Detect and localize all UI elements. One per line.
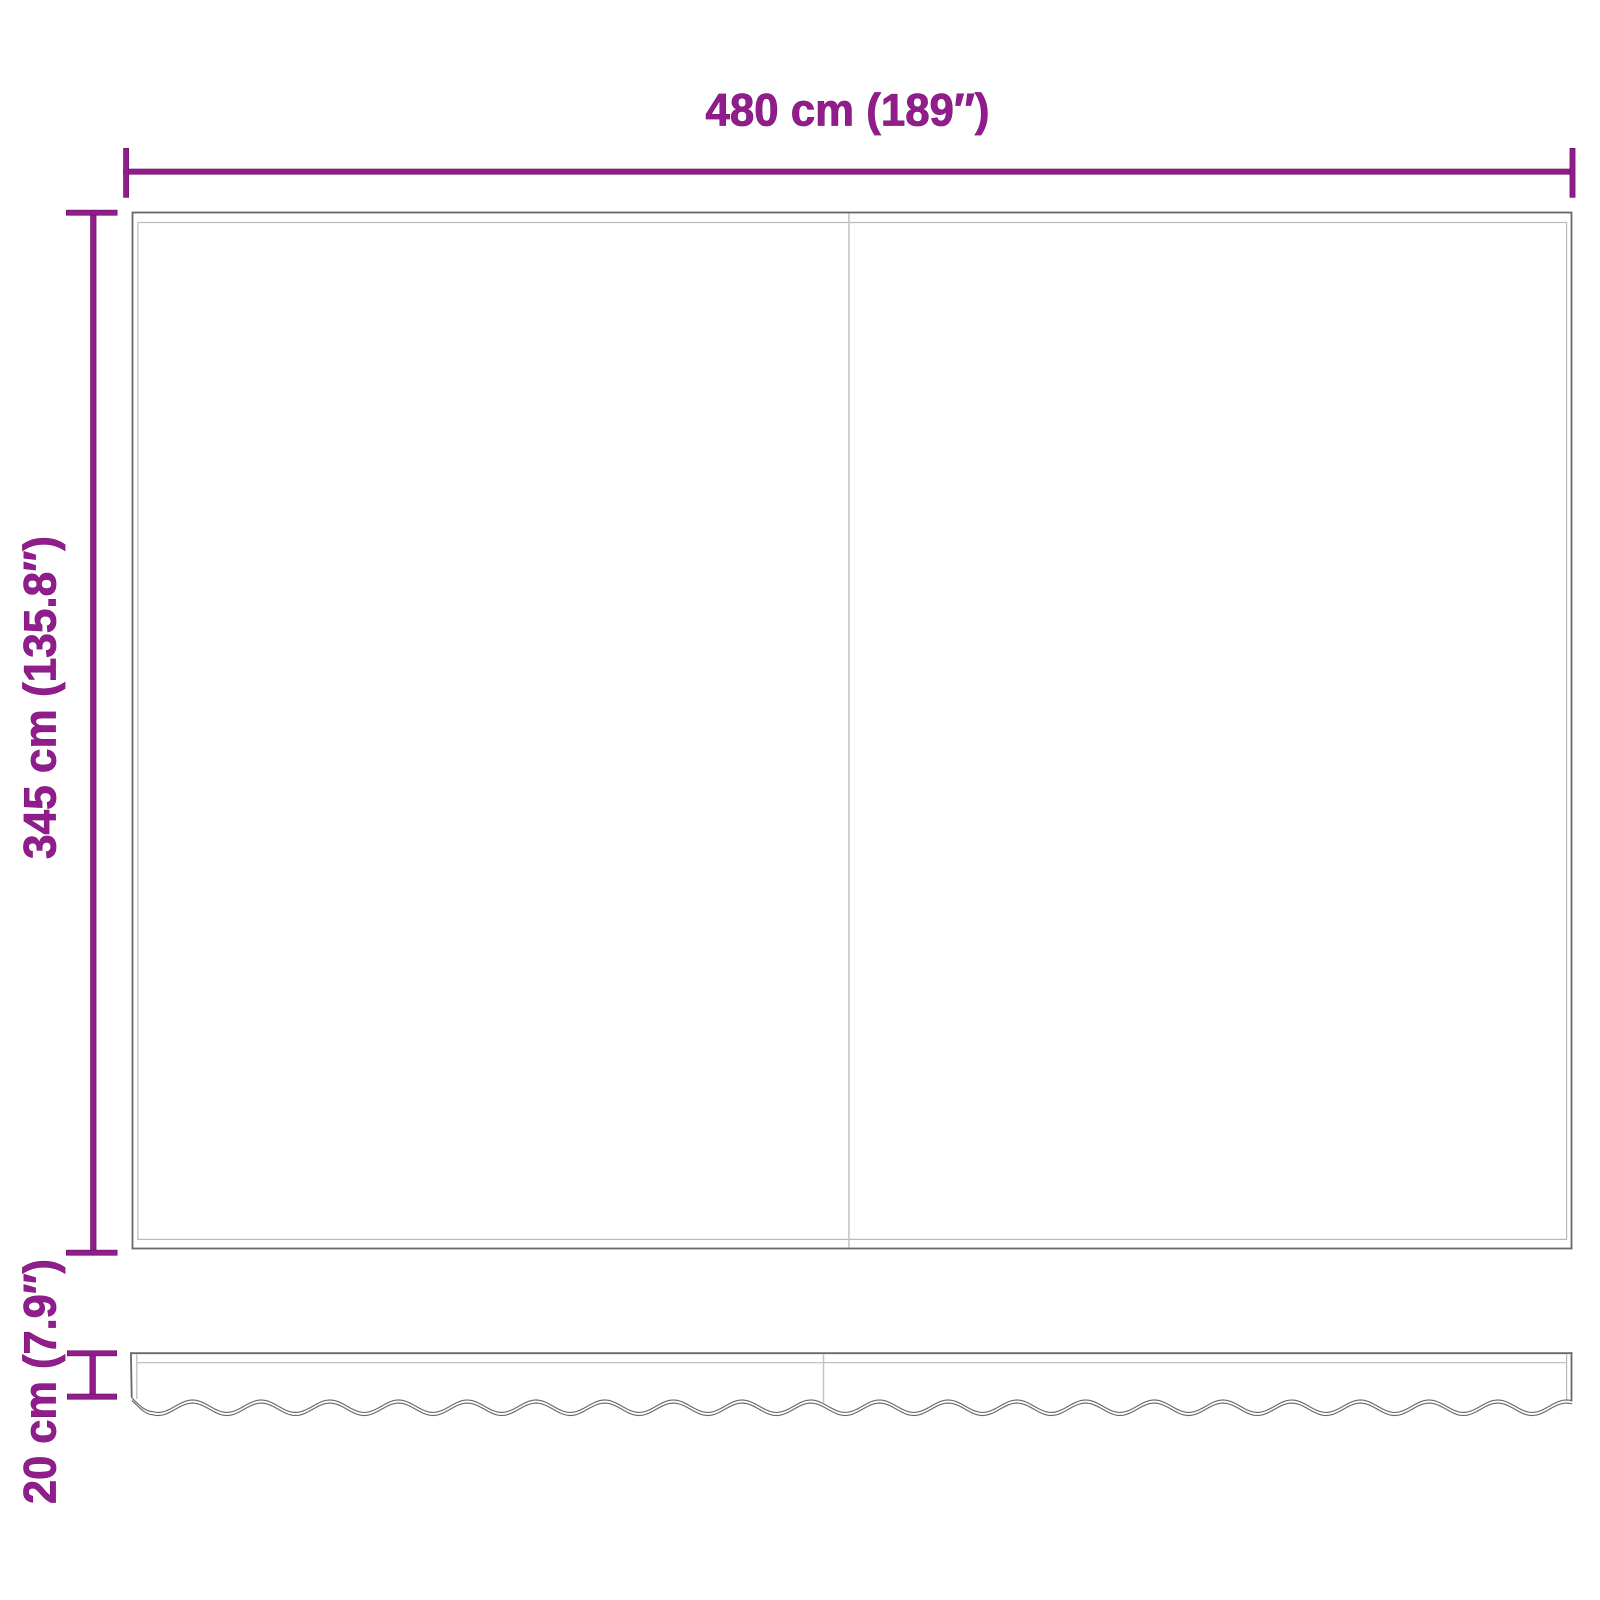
svg-text:480 cm (189″): 480 cm (189″) <box>706 85 990 136</box>
svg-text:345 cm (135.8″): 345 cm (135.8″) <box>14 536 65 859</box>
svg-text:20 cm (7.9″): 20 cm (7.9″) <box>14 1259 65 1504</box>
